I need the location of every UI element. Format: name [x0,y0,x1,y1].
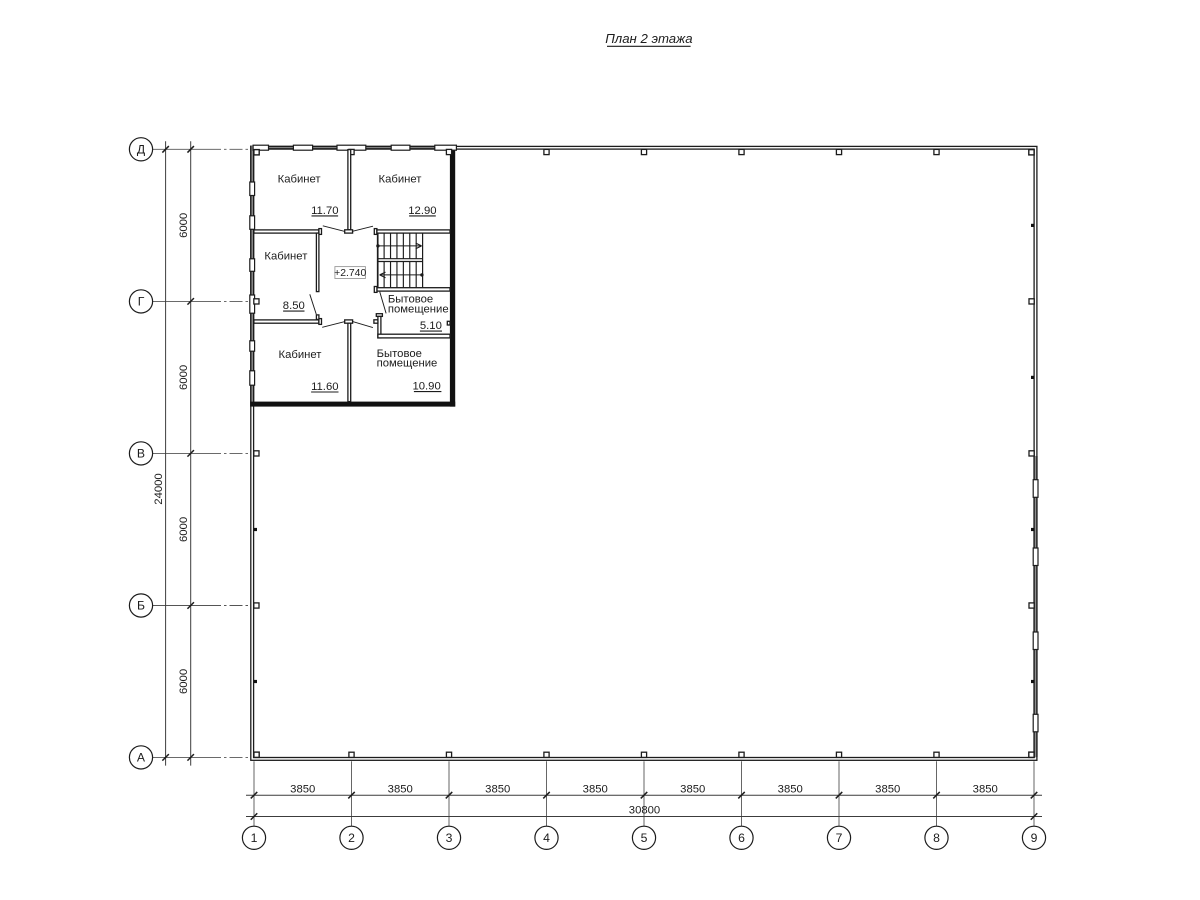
svg-text:8: 8 [933,831,940,845]
svg-text:6000: 6000 [178,669,190,694]
svg-text:8.50: 8.50 [283,300,305,312]
svg-text:3850: 3850 [583,783,608,795]
svg-text:2: 2 [348,831,355,845]
svg-text:3850: 3850 [388,783,413,795]
svg-text:1: 1 [251,831,258,845]
svg-text:9: 9 [1031,831,1038,845]
svg-text:30800: 30800 [629,805,660,817]
svg-text:3850: 3850 [778,783,803,795]
svg-text:6000: 6000 [178,213,190,238]
svg-text:Кабинет: Кабинет [278,174,321,186]
svg-text:10.90: 10.90 [412,381,440,393]
svg-text:3850: 3850 [290,783,315,795]
svg-text:12.90: 12.90 [408,205,436,217]
svg-text:7: 7 [836,831,843,845]
svg-text:Б: Б [137,599,145,613]
svg-text:помещение: помещение [377,358,438,370]
svg-text:Г: Г [138,295,145,309]
svg-text:3850: 3850 [875,783,900,795]
svg-text:3850: 3850 [973,783,998,795]
svg-text:3850: 3850 [680,783,705,795]
svg-text:11.70: 11.70 [311,205,338,217]
svg-text:5: 5 [641,831,648,845]
svg-text:3850: 3850 [485,783,510,795]
svg-text:6000: 6000 [178,365,190,390]
svg-text:План 2 этажа: План 2 этажа [605,31,692,46]
svg-text:11.60: 11.60 [311,381,338,393]
svg-text:5.10: 5.10 [420,320,442,332]
svg-text:24000: 24000 [153,473,165,504]
svg-text:6: 6 [738,831,745,845]
svg-text:+2.740: +2.740 [334,268,366,279]
svg-text:4: 4 [543,831,550,845]
svg-text:В: В [137,447,145,461]
svg-text:3: 3 [446,831,453,845]
svg-text:А: А [137,751,146,765]
svg-text:Кабинет: Кабинет [279,349,322,361]
svg-text:Д: Д [137,143,146,157]
svg-text:помещение: помещение [388,303,449,315]
svg-text:Кабинет: Кабинет [264,250,307,262]
svg-text:6000: 6000 [178,517,190,542]
svg-text:Кабинет: Кабинет [379,174,422,186]
